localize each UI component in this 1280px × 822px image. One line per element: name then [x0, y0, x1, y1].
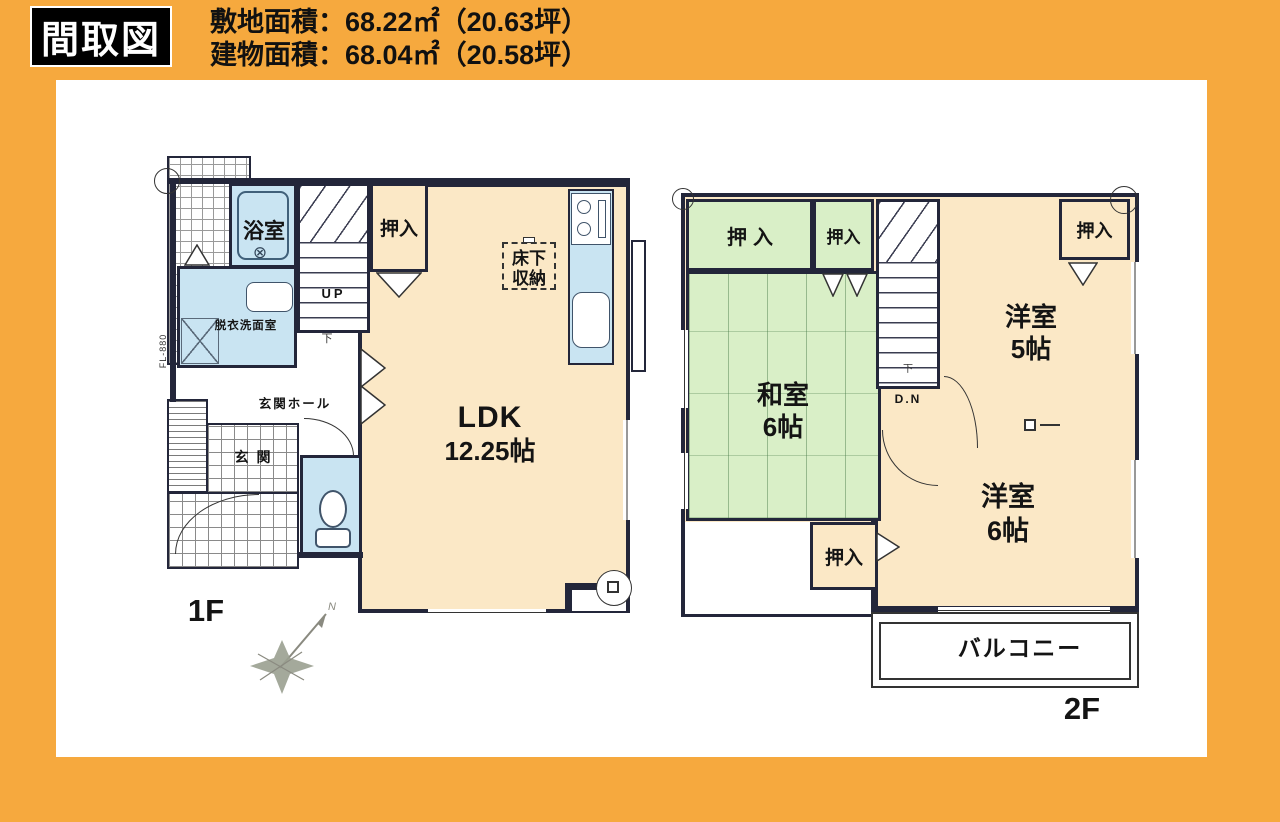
building-area-line: 建物面積：68.04㎡（20.58坪） [210, 39, 588, 72]
door-wedge-icon [846, 273, 868, 297]
western6-name-label: 洋室 [972, 478, 1044, 510]
bay-recess [631, 240, 646, 372]
stairs-winder-lines [879, 202, 937, 262]
window-2f-west [681, 330, 688, 408]
underfloor-handle [523, 237, 535, 243]
door-wedge-icon [360, 348, 386, 388]
floor1-label: 1F [174, 594, 238, 628]
north-letter: N [328, 601, 336, 613]
underfloor-label-2: 収納 [502, 266, 556, 286]
toilet-tank-icon [315, 528, 351, 548]
burner-icon [577, 222, 591, 236]
plan-title: 間取図 [41, 9, 161, 64]
stairs-up-label: UP [297, 285, 370, 301]
washitsu-size-label: 6帖 [733, 410, 833, 440]
wall-segment [297, 552, 363, 558]
partition-post-mark [1024, 419, 1036, 431]
site-area-line: 敷地面積：68.22㎡（20.63坪） [210, 6, 588, 39]
bath-drain-icon: ⊗ [248, 243, 272, 263]
sink-icon [572, 292, 610, 348]
area-summary: 敷地面積：68.22㎡（20.63坪） 建物面積：68.04㎡（20.58坪） [210, 6, 588, 72]
western6-size-label: 6帖 [972, 512, 1044, 544]
western5-name-label: 洋室 [996, 300, 1066, 330]
porch-strip [167, 399, 208, 493]
ldk-size-label: 12.25帖 [415, 434, 565, 464]
stove-icon [571, 193, 611, 245]
floor-level-label: FL-880 [156, 321, 170, 381]
door-wedge-icon [822, 273, 844, 297]
corner-post-mark [1110, 186, 1138, 214]
bathroom-label: 浴室 [236, 218, 292, 242]
closet-1f-label: 押入 [372, 216, 426, 238]
western5-size-label: 5帖 [996, 332, 1066, 362]
water-heater-unit [607, 581, 619, 593]
wall-top-1f [167, 178, 630, 184]
corridor-mark-1f: 下 [320, 331, 334, 345]
grill-icon [598, 200, 606, 238]
corner-post-mark [672, 188, 694, 210]
washroom-label: 脱衣洗面室 [196, 317, 296, 333]
door-wedge-icon [360, 385, 386, 425]
washitsu-name-label: 和室 [733, 378, 833, 408]
closet-2f-d-label: 押入 [1061, 219, 1128, 241]
window-2f-east-2 [1131, 460, 1139, 558]
closet-2f-b-label: 押入 [814, 224, 873, 246]
balcony-label: バルコニー [940, 632, 1100, 660]
door-wedge-icon [376, 272, 422, 298]
ldk-name-label: LDK [415, 402, 565, 434]
stairs-winder-lines [300, 186, 367, 242]
corridor-mark-2f: 下 [901, 360, 915, 374]
door-wedge-icon [1068, 262, 1098, 286]
floor-plan-page: 間取図 敷地面積：68.22㎡（20.63坪） 建物面積：68.04㎡（20.5… [0, 0, 1280, 822]
partition-tick [1040, 424, 1060, 426]
water-heater-icon [596, 570, 632, 606]
burner-icon [577, 200, 591, 214]
window-2f-east [1131, 262, 1139, 354]
stairs-down-label: D.N [886, 392, 930, 406]
stairs-1f [297, 183, 370, 333]
wall-left-1f [170, 180, 176, 402]
entrance-hall-label: 玄関ホール [240, 394, 350, 410]
door-wedge-icon [876, 532, 900, 562]
compass-north-icon: N [238, 596, 342, 702]
genkan-label: 玄関 [206, 448, 299, 466]
closet-2f-c-label: 押入 [812, 545, 876, 567]
wall-segment [565, 583, 572, 613]
window-1f-east [623, 420, 631, 520]
plan-title-box: 間取図 [30, 6, 172, 67]
toilet-bowl-icon [319, 490, 347, 528]
door-wedge-icon [184, 244, 210, 266]
washbasin-icon [246, 282, 293, 312]
closet-2f-a-label: 押入 [700, 223, 800, 247]
window-1f-south [428, 609, 546, 616]
corner-post-mark [154, 168, 180, 194]
floor2-label: 2F [1050, 692, 1114, 726]
window-2f-west-2 [681, 453, 688, 509]
